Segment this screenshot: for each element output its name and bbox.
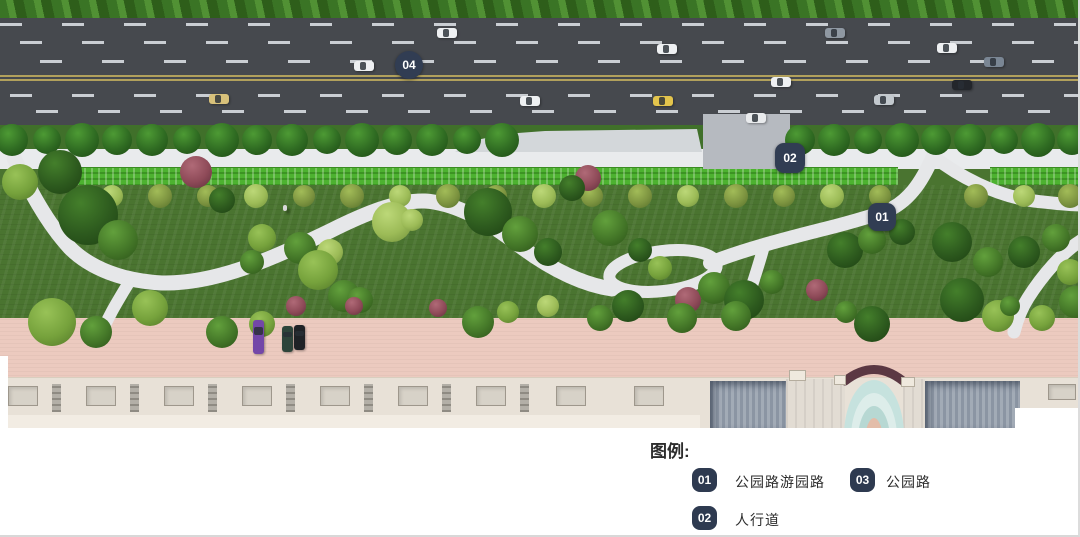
ornamental-tree <box>820 184 844 208</box>
ornamental-tree <box>628 184 652 208</box>
car-windshield <box>526 97 532 105</box>
ornamental-tree <box>773 185 795 207</box>
ornamental-tree <box>532 184 556 208</box>
park-tree <box>240 250 264 274</box>
park-tree <box>760 270 784 294</box>
car-windshield <box>443 29 449 37</box>
car-windshield <box>831 29 837 37</box>
park-tree <box>180 156 212 188</box>
car-windshield <box>360 62 366 70</box>
car <box>937 43 957 53</box>
car <box>746 113 766 123</box>
park-tree <box>345 297 363 315</box>
parapet <box>834 375 846 385</box>
roof-unit <box>1048 384 1076 400</box>
car-windshield <box>663 45 669 53</box>
legend-label-02: 人行道 <box>735 510 780 530</box>
ornamental-tree <box>1013 185 1035 207</box>
park-tree <box>429 299 447 317</box>
car <box>520 96 540 106</box>
roof-strip <box>442 384 451 412</box>
car-windshield <box>215 95 221 103</box>
ornamental-tree <box>964 184 988 208</box>
parked-car <box>282 326 293 352</box>
park-tree <box>1042 224 1070 252</box>
ornamental-tree <box>677 185 699 207</box>
car-windshield <box>990 58 996 66</box>
park-tree <box>537 295 559 317</box>
parapet <box>901 377 915 387</box>
vegetation-and-vehicles <box>0 0 1080 428</box>
roof-unit <box>86 386 116 406</box>
street-tree <box>921 125 951 155</box>
park-tree <box>835 301 857 323</box>
car <box>657 44 677 54</box>
parked-car <box>253 320 264 354</box>
car <box>771 77 791 87</box>
car <box>653 96 673 106</box>
park-tree <box>559 175 585 201</box>
street-tree <box>885 123 919 157</box>
car-windshield <box>752 114 758 122</box>
street-tree <box>453 126 481 154</box>
ornamental-tree <box>148 184 172 208</box>
legend-badge-03: 03 <box>850 468 875 492</box>
parked-car <box>294 325 305 350</box>
park-tree <box>628 238 652 262</box>
car-windshield <box>659 97 665 105</box>
park-tree <box>1029 305 1055 331</box>
park-tree <box>1000 296 1020 316</box>
ornamental-tree <box>436 184 460 208</box>
site-plan-rendering: 04 02 01 <box>0 0 1080 428</box>
map-marker-02: 02 <box>775 143 805 173</box>
car-windshield <box>254 327 262 334</box>
street-tree <box>345 123 379 157</box>
park-tree <box>973 247 1003 277</box>
street-tree <box>276 124 308 156</box>
ornamental-tree <box>293 185 315 207</box>
roof-unit <box>634 386 664 406</box>
park-tree <box>132 290 168 326</box>
park-tree <box>587 305 613 331</box>
street-tree <box>242 125 272 155</box>
render-edge-notch <box>0 356 8 428</box>
park-tree <box>497 301 519 323</box>
roof-unit <box>556 386 586 406</box>
park-tree <box>932 222 972 262</box>
street-tree <box>818 124 850 156</box>
street-tree <box>0 124 28 156</box>
park-tree <box>1057 259 1080 285</box>
street-tree <box>205 123 239 157</box>
street-tree <box>1057 125 1080 155</box>
street-tree <box>416 124 448 156</box>
render-edge-bottom-right <box>1015 408 1080 428</box>
roof-unit <box>164 386 194 406</box>
ornamental-tree <box>1058 184 1080 208</box>
legend-badge-02: 02 <box>692 506 717 530</box>
car <box>354 61 374 71</box>
parapet <box>789 370 806 381</box>
park-tree <box>1059 286 1080 318</box>
park-tree <box>534 238 562 266</box>
car <box>209 94 229 104</box>
street-tree <box>485 123 519 157</box>
roof-strip <box>52 384 61 412</box>
street-tree <box>173 126 201 154</box>
park-tree <box>28 298 76 346</box>
car-windshield <box>283 332 291 338</box>
car <box>825 28 845 38</box>
ornamental-tree <box>244 184 268 208</box>
street-tree <box>854 126 882 154</box>
map-marker-01: 01 <box>868 203 896 231</box>
legend-label-01: 公园路游园路 <box>735 472 825 492</box>
park-tree <box>462 306 494 338</box>
park-tree <box>286 296 306 316</box>
car <box>437 28 457 38</box>
street-tree <box>954 124 986 156</box>
park-tree <box>2 164 38 200</box>
street-tree <box>136 124 168 156</box>
roof-unit <box>476 386 506 406</box>
car-windshield <box>295 331 303 337</box>
pedestrian <box>283 205 287 211</box>
park-tree <box>80 316 112 348</box>
roof-strip <box>364 384 373 412</box>
park-tree <box>248 224 276 252</box>
roof-strip <box>286 384 295 412</box>
park-tree <box>98 220 138 260</box>
car <box>952 80 972 90</box>
park-tree <box>401 209 423 231</box>
car <box>984 57 1004 67</box>
map-marker-04: 04 <box>395 51 423 79</box>
car-windshield <box>880 96 886 104</box>
roof-strip <box>520 384 529 412</box>
car-windshield <box>777 78 783 86</box>
page: 04 02 01 图例: 01 公园路游园路 03 公园路 02 人行道 <box>0 0 1080 537</box>
park-tree <box>854 306 890 342</box>
roof-strip <box>130 384 139 412</box>
legend-badge-01: 01 <box>692 468 717 492</box>
street-tree <box>1021 123 1055 157</box>
roof-unit <box>8 386 38 406</box>
park-tree <box>667 303 697 333</box>
park-tree <box>648 256 672 280</box>
street-tree <box>990 126 1018 154</box>
street-tree <box>313 126 341 154</box>
roof-unit <box>242 386 272 406</box>
legend-label-03: 公园路 <box>886 472 931 492</box>
park-tree <box>502 216 538 252</box>
park-tree <box>806 279 828 301</box>
park-tree <box>592 210 628 246</box>
park-tree <box>209 187 235 213</box>
street-tree <box>102 125 132 155</box>
roof-unit <box>398 386 428 406</box>
roof-unit <box>320 386 350 406</box>
car-windshield <box>943 44 949 52</box>
park-tree <box>612 290 644 322</box>
car-windshield <box>958 81 964 89</box>
roof-strip <box>208 384 217 412</box>
ornamental-tree <box>340 184 364 208</box>
park-tree <box>940 278 984 322</box>
car <box>874 95 894 105</box>
ornamental-tree <box>724 184 748 208</box>
street-tree <box>382 125 412 155</box>
park-tree <box>721 301 751 331</box>
park-tree <box>206 316 238 348</box>
legend-title: 图例: <box>650 437 690 462</box>
park-tree <box>1008 236 1040 268</box>
